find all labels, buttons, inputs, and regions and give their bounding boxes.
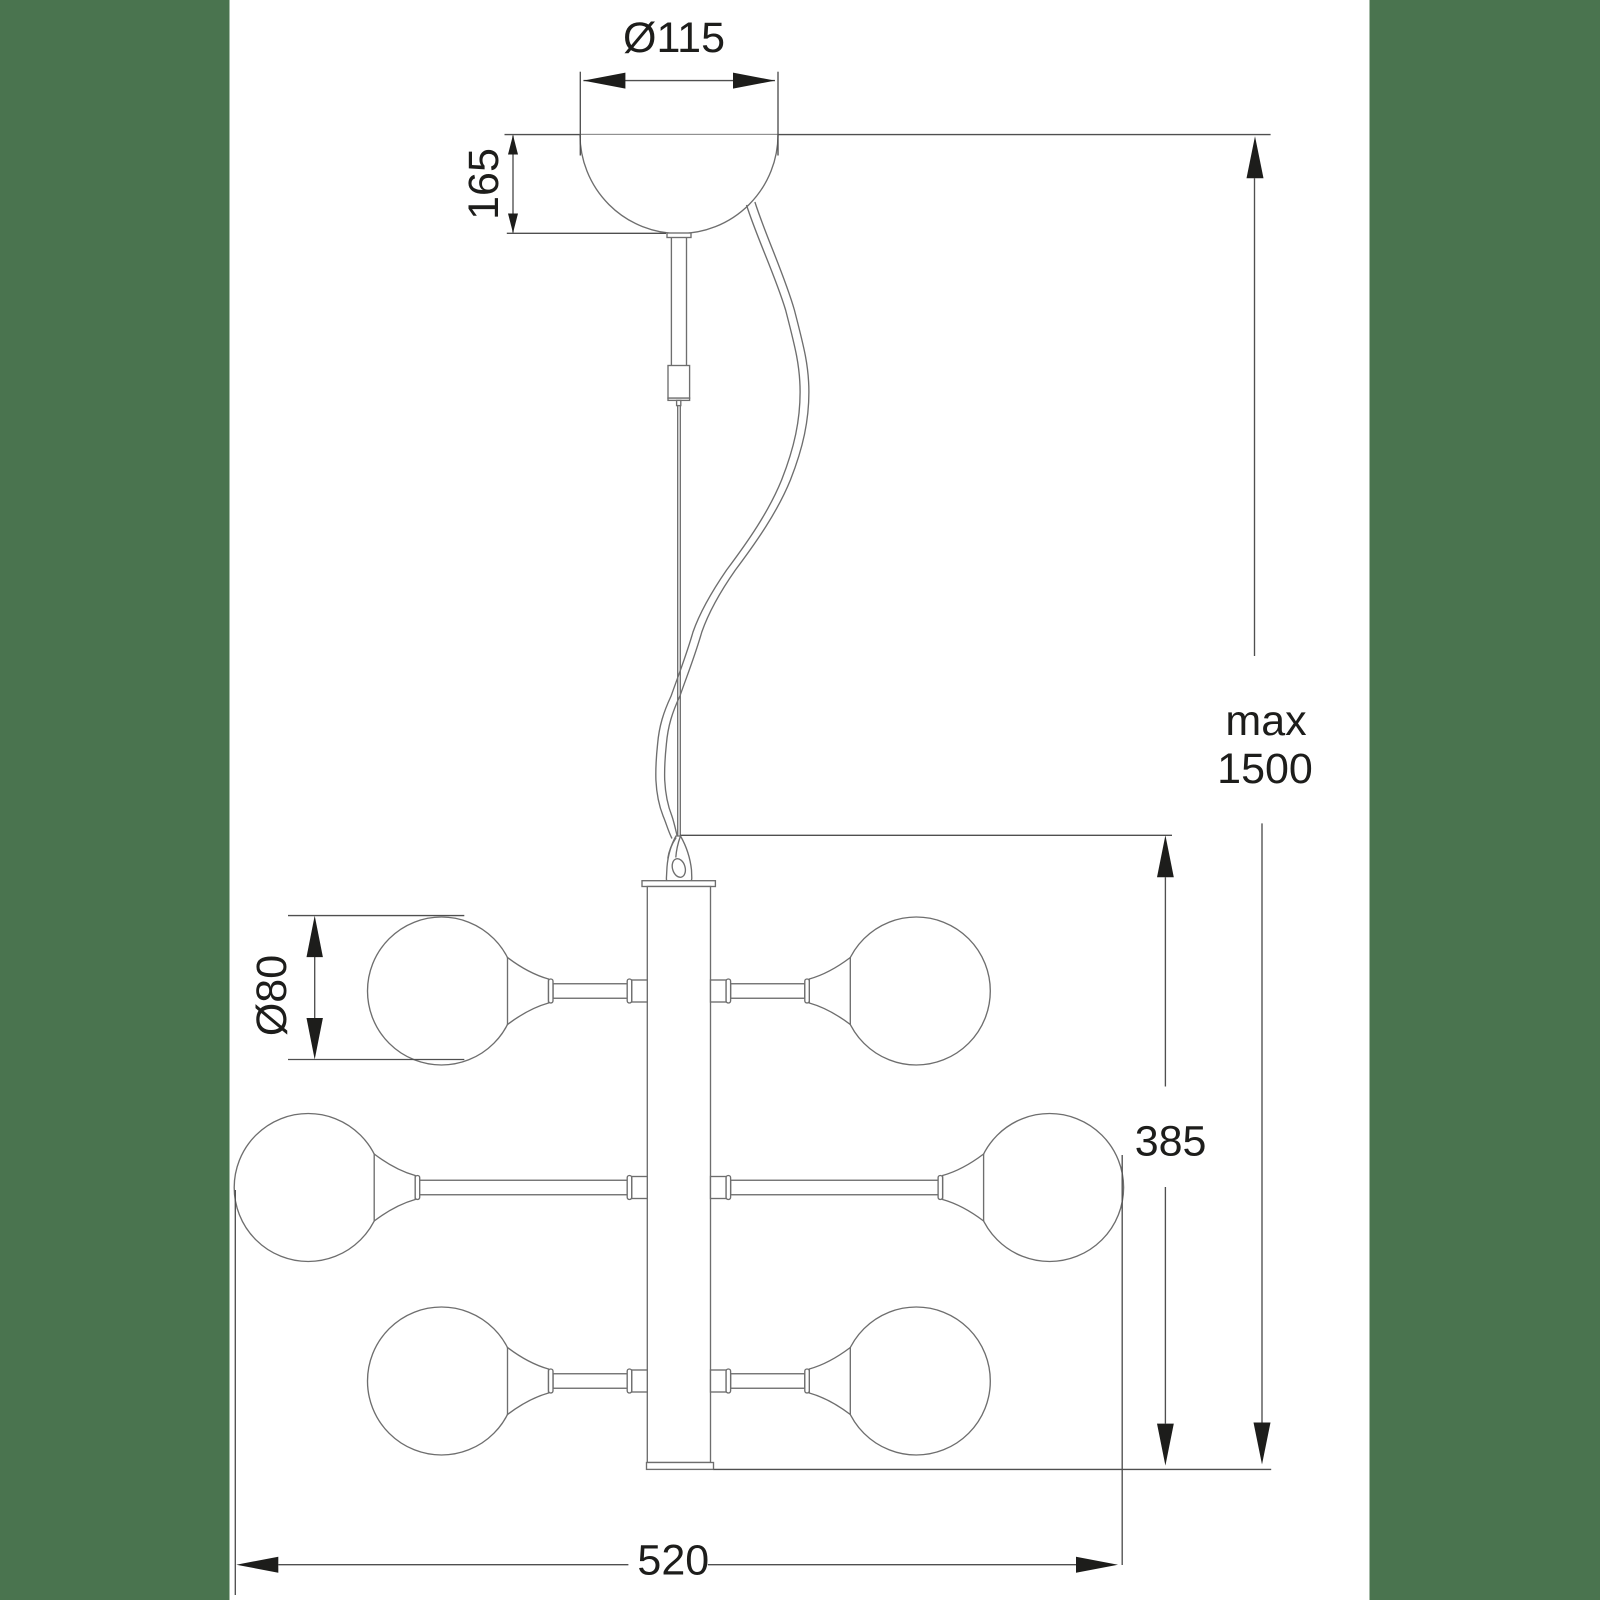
svg-text:max: max [1225, 697, 1307, 745]
svg-text:520: 520 [637, 1536, 709, 1584]
svg-text:385: 385 [1135, 1118, 1207, 1166]
svg-text:165: 165 [460, 148, 508, 220]
svg-text:1500: 1500 [1217, 745, 1313, 793]
svg-text:Ø80: Ø80 [248, 955, 296, 1036]
svg-text:Ø115: Ø115 [623, 14, 725, 62]
